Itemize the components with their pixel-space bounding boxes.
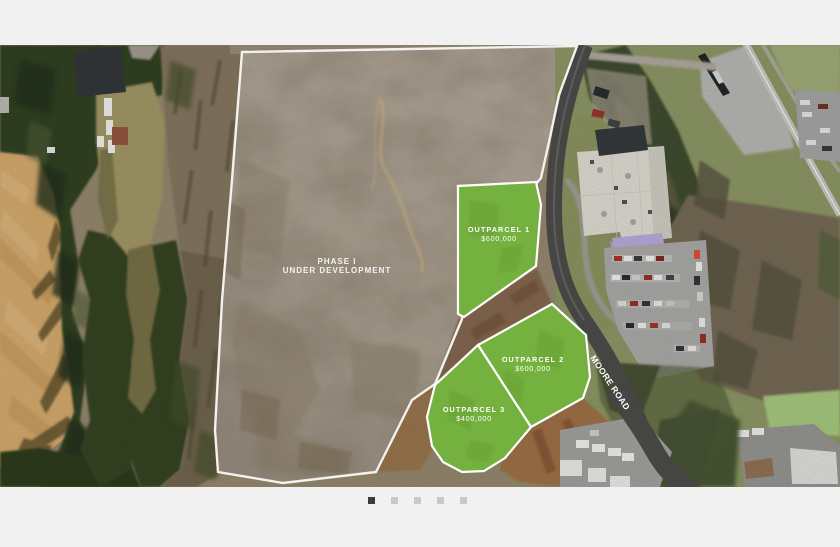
svg-text:$600,000: $600,000: [481, 234, 517, 243]
svg-text:UNDER DEVELOPMENT: UNDER DEVELOPMENT: [283, 266, 392, 275]
svg-text:OUTPARCEL 3: OUTPARCEL 3: [443, 405, 505, 414]
svg-text:OUTPARCEL 1: OUTPARCEL 1: [468, 225, 530, 234]
svg-text:PHASE I: PHASE I: [317, 257, 356, 266]
svg-text:$600,000: $600,000: [515, 364, 551, 373]
svg-text:$400,000: $400,000: [456, 414, 492, 423]
svg-text:OUTPARCEL 2: OUTPARCEL 2: [502, 355, 564, 364]
